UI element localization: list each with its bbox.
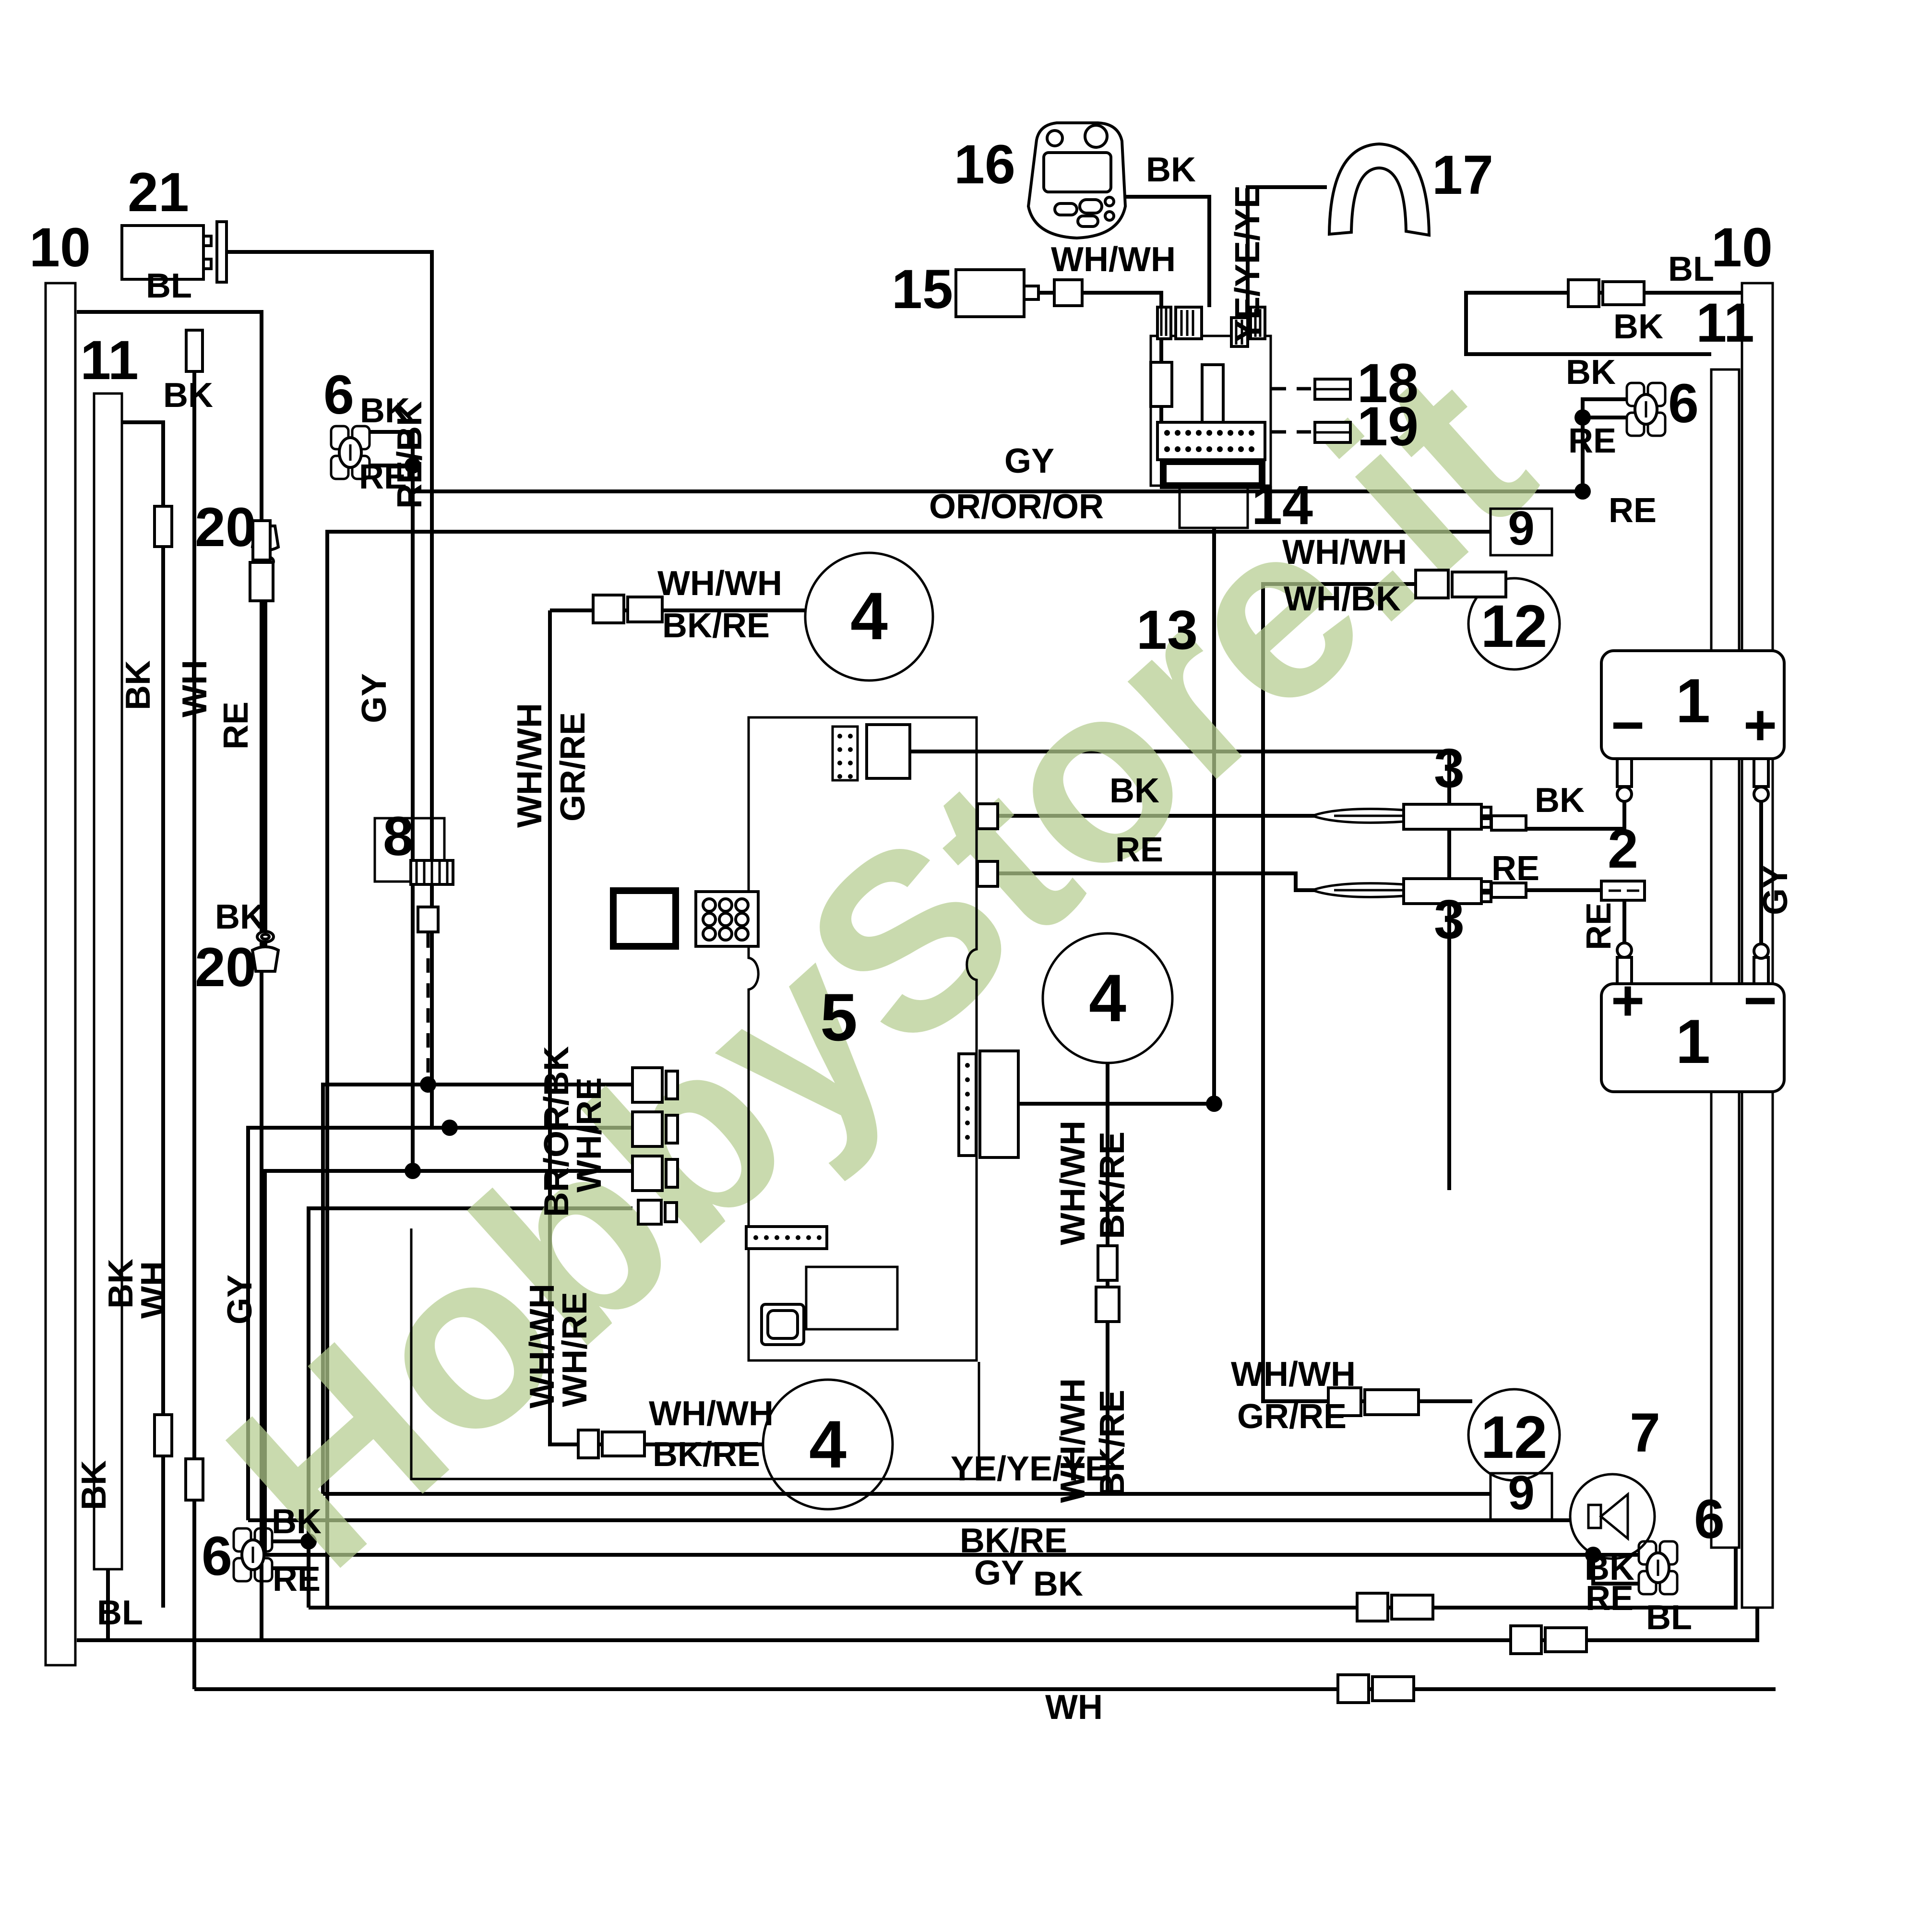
wire-wh-leftv: WH [176,660,214,717]
bus-wh: WH [1045,1688,1103,1727]
wire-bk-6tl: BK [360,392,410,430]
junction-dot [405,1163,421,1179]
comp-1-bottom: 1 [1676,1006,1710,1076]
component-19-plug [1315,422,1350,442]
pin-grid-board [703,899,748,940]
wire-re-6bl: RE [273,1560,321,1598]
wire-grre-boardleft: GR/RE [554,712,592,822]
comp-10-left: 10 [29,217,91,278]
wire-bk-fuse: BK [1535,781,1585,820]
wire-whwh-motortop: WH/WH [657,564,782,603]
component-18-plug [1315,379,1350,399]
wire-whwh-motorbot: WH/WH [649,1395,774,1433]
bar-11-right [1711,370,1739,1548]
comp-16: 16 [954,134,1015,195]
wire-whwh-15: WH/WH [1051,240,1176,279]
wire-whbk-12top: WH/BK [1284,580,1401,618]
wire-re-batt: RE [1580,902,1618,950]
comp-9-top: 9 [1508,501,1535,555]
comp-13: 13 [1136,599,1198,661]
wire-bk-board: BK [1109,772,1159,810]
wire-re-fuse: RE [1491,849,1539,888]
wire-bl-bottomright: BL [1646,1598,1692,1637]
wire-bl-bottomleft: BL [97,1594,143,1632]
wire-bk-6bl: BK [272,1503,322,1541]
wire-bl-topleft: BL [146,267,192,305]
comp-6-topleft: 6 [323,364,354,426]
wire-gy-top: GY [1004,442,1054,480]
wire-re-6tl: RE [359,458,407,496]
junction-dot [441,1120,458,1136]
batt2-plus: + [1611,968,1645,1033]
comp-9-bottom: 9 [1508,1466,1535,1520]
wire-15 [1025,293,1161,422]
wire-bkre-motormid1: BK/RE [1093,1132,1132,1239]
wiring-diagram: HobbyStore.it [0,0,1932,1932]
wire-whwh-motormid1: WH/WH [1054,1121,1092,1245]
wire-re-6tr2: RE [1609,491,1657,530]
bus-yeyeye: YE/YE/YE [951,1450,1108,1488]
batt2-minus: − [1743,968,1777,1033]
bus-bk: BK [1033,1565,1083,1603]
batt1-minus: − [1611,693,1645,757]
wire-whwh-12bot: WH/WH [1231,1355,1356,1394]
comp-6-bottomleft: 6 [202,1526,232,1587]
comp-12-top: 12 [1480,593,1547,660]
bus-gy: GY [974,1554,1024,1592]
junction-dot [1206,1096,1222,1112]
component-16-display [1028,123,1125,238]
wire-bk-topleft: BK [163,376,213,415]
component-6-topright-clamp [1627,383,1665,436]
component-20-bottom-sensor [252,931,278,971]
wire-whre-2: WH/RE [556,1292,594,1407]
wire-bkre-motortop: BK/RE [662,607,770,645]
comp-1-top: 1 [1676,666,1710,736]
junction-dot [1574,483,1591,500]
wire-gy-leftv2: GY [221,1275,259,1324]
comp-20-bottom: 20 [195,937,256,998]
wire-yeyeye-top: YE/YE/YE [1228,185,1267,343]
wire-whre-1: WH/RE [570,1077,608,1193]
wire-wh-leftv2: WH [134,1261,173,1319]
component-2-fuse [1601,881,1645,900]
component-3-top-fuseholder [1312,804,1526,830]
bar-11-left [94,394,122,1569]
watermark-text: HobbyStore.it [177,317,1580,1620]
comp-3-top: 3 [1434,738,1465,799]
comp-4-bottom: 4 [809,1407,847,1482]
wire-bk-topright: BK [1613,308,1663,346]
wire-bk-6tr: BK [1566,353,1616,392]
wire-gy-batt: GY [1756,865,1795,915]
wire-gy-leftv: GY [355,673,394,723]
comp-6-bottomright: 6 [1694,1489,1725,1550]
wire-bk-display: BK [1146,151,1196,189]
comp-15: 15 [892,259,953,320]
comp-20-top: 20 [195,497,256,558]
comp-11-left: 11 [80,330,139,391]
comp-11-right: 11 [1696,292,1754,354]
wire-bl-topright: BL [1668,250,1714,288]
wire-bkre-motorbot: BK/RE [653,1435,760,1474]
wire-grre-12bot: GR/RE [1237,1397,1347,1436]
wire-bk-sensor: BK [215,898,265,936]
bus-bl [77,1608,1757,1640]
comp-12-bottom: 12 [1480,1404,1547,1471]
comp-2: 2 [1608,818,1638,880]
wire-bk-bottomleft: BK [75,1460,113,1510]
comp-14: 14 [1252,475,1313,536]
component-17-cover [1329,144,1429,235]
wire-re-sensor: RE [217,702,255,750]
comp-4-top: 4 [850,578,888,654]
comp-7: 7 [1630,1402,1660,1464]
wire-re-board: RE [1115,831,1163,869]
component-6-bottomright-clamp [1639,1541,1677,1594]
wire-bk-leftv: BK [119,660,157,710]
comp-19: 19 [1357,396,1419,457]
comp-10-right: 10 [1711,217,1773,278]
wire-whwh-12top: WH/WH [1282,533,1407,572]
comp-4-middle: 4 [1089,960,1126,1036]
comp-3-bottom: 3 [1434,889,1465,950]
wire-re-6tr: RE [1568,422,1616,460]
comp-17: 17 [1432,144,1493,206]
comp-8: 8 [383,806,414,867]
comp-5: 5 [820,979,858,1055]
wire-re-6br: RE [1586,1579,1634,1618]
batt1-plus: + [1743,693,1777,757]
watermark: HobbyStore.it [177,317,1580,1620]
wiring-diagram-page: HobbyStore.it [0,0,1932,1932]
wire-ororor: OR/OR/OR [929,488,1104,526]
comp-21: 21 [128,162,189,223]
component-7-buzzer [1570,1474,1655,1559]
bar-10-left [46,283,75,1665]
wire-whwh-boardleft: WH/WH [511,703,549,828]
comp-6-topright: 6 [1668,373,1699,434]
junction-dot [420,1076,436,1093]
